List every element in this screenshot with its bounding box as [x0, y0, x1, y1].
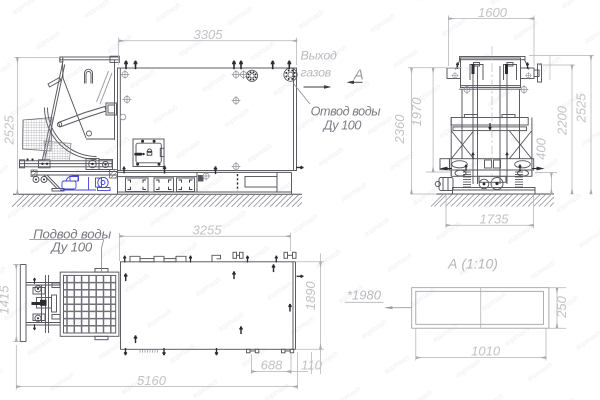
svg-text:3305: 3305	[194, 27, 224, 42]
svg-text:5160: 5160	[137, 373, 167, 388]
svg-text:2200: 2200	[555, 105, 570, 136]
svg-text:2360: 2360	[392, 114, 407, 145]
svg-text:Ду 100: Ду 100	[322, 119, 362, 133]
svg-text:1890: 1890	[303, 281, 318, 311]
svg-text:1415: 1415	[0, 285, 12, 315]
svg-text:газов: газов	[301, 66, 332, 80]
svg-text:2525: 2525	[2, 115, 17, 146]
svg-text:3255: 3255	[193, 222, 223, 237]
svg-text:250: 250	[554, 295, 569, 318]
svg-text:А (1:10): А (1:10)	[447, 256, 498, 272]
svg-text:Выход: Выход	[301, 49, 338, 63]
svg-text:1970: 1970	[409, 97, 424, 127]
svg-text:*1980: *1980	[347, 288, 382, 303]
svg-text:Отвод воды: Отвод воды	[311, 105, 382, 119]
svg-text:1735: 1735	[480, 212, 510, 227]
svg-text:1010: 1010	[471, 343, 501, 358]
svg-text:110: 110	[301, 357, 322, 372]
svg-text:400: 400	[534, 137, 549, 159]
svg-text:А: А	[353, 67, 364, 84]
svg-text:1600: 1600	[478, 5, 508, 20]
svg-text:688: 688	[261, 358, 283, 373]
svg-text:Ду 100: Ду 100	[50, 240, 93, 255]
svg-text:2525: 2525	[574, 93, 589, 124]
